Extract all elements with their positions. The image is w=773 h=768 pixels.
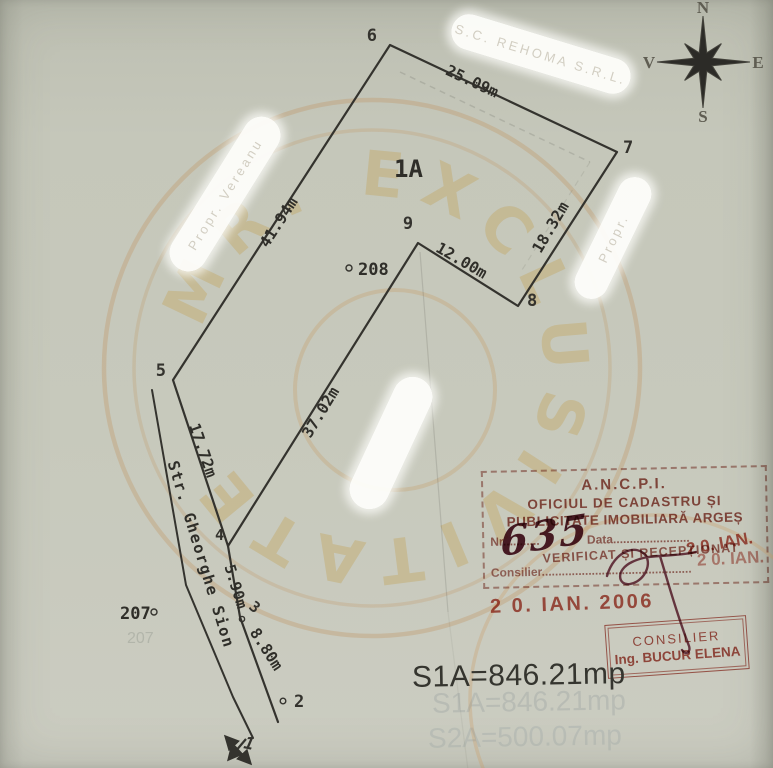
- measure-25-09: 25.09m: [443, 61, 501, 101]
- vertex-label-9: 9: [403, 214, 413, 234]
- ghost-207-label: 207: [127, 630, 154, 648]
- vertex-label-8: 8: [527, 291, 537, 311]
- measure-37-02: 37.02m: [298, 384, 343, 441]
- marker-208: [346, 265, 352, 271]
- vertex-label-6: 6: [367, 26, 377, 46]
- cadastral-plan-scan: MR. EXCLUSIVITATE 6: [0, 0, 773, 768]
- ghost-area-s2a: S2A=500.07mp: [428, 719, 622, 754]
- vertex-label-2: 2: [294, 692, 304, 712]
- compass-west-label: V: [643, 53, 656, 72]
- compass-rose: N S E V: [643, 0, 764, 126]
- date-stamp-overlap-echo: 2 0. IAN.: [697, 547, 765, 570]
- neighbor-plot-207-label: 207: [120, 604, 151, 624]
- marker-207: [151, 609, 157, 615]
- marker-2: [280, 698, 286, 704]
- parcel-label: 1A: [394, 155, 423, 183]
- compass-south-label: S: [698, 107, 707, 126]
- vertex-label-5: 5: [156, 361, 166, 381]
- neighbor-plot-208-label: 208: [358, 260, 389, 280]
- vertex-label-7: 7: [623, 138, 633, 158]
- compass-star: [657, 16, 750, 108]
- consilier-stamp-inner: CONSILIER Ing. BUCUR ELENA: [607, 618, 746, 675]
- compass-north-label: N: [697, 0, 710, 17]
- ghost-area-s1a: S1A=846.21mp: [432, 684, 626, 719]
- consilier-stamp: CONSILIER Ing. BUCUR ELENA: [604, 615, 749, 679]
- vertex-label-4: 4: [215, 526, 224, 544]
- measure-17-72: 17.72m: [185, 421, 220, 480]
- vertex-label-1: 1: [242, 733, 256, 755]
- compass-east-label: E: [752, 53, 763, 72]
